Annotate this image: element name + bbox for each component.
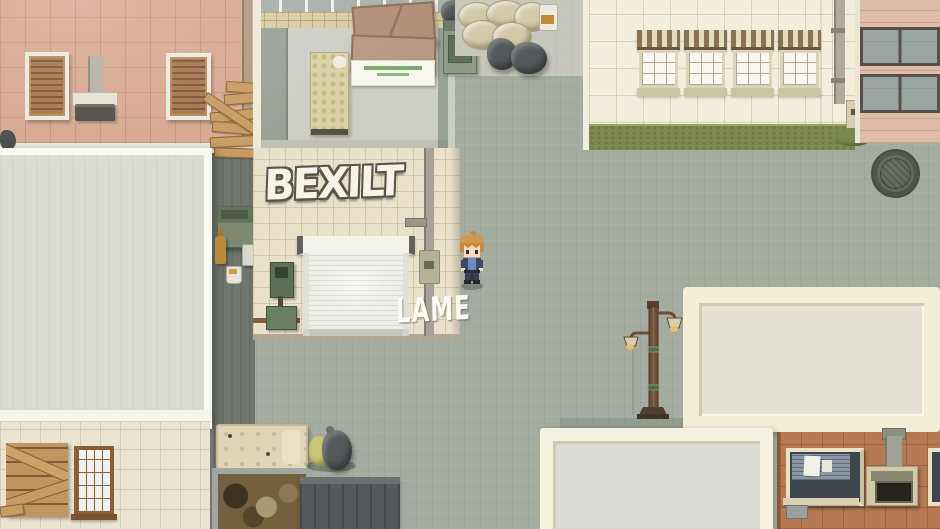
large-window-row1 — [860, 27, 940, 66]
room-floor-shadow — [261, 140, 448, 148]
taped-paper — [822, 460, 832, 472]
trash-bag-corner — [0, 130, 16, 150]
utility-box-lower — [266, 306, 297, 330]
awning — [637, 30, 680, 50]
room-wall-left — [260, 28, 288, 140]
scroll-blotch — [333, 56, 346, 68]
wall-vent-grille — [75, 104, 115, 121]
bag-knot — [326, 426, 334, 434]
mattress-fold — [282, 430, 300, 464]
lamp-arm-left — [624, 333, 649, 350]
graffiti-text: BEXILT — [263, 160, 405, 220]
awning — [731, 30, 774, 50]
collector-slot — [424, 261, 434, 269]
notice-sign — [351, 60, 435, 86]
garbage-crate — [212, 468, 312, 529]
awning — [778, 30, 821, 50]
scroll-base — [311, 129, 348, 135]
mattress-stain — [228, 434, 232, 438]
window-sill — [637, 88, 680, 96]
window-sill — [731, 88, 774, 96]
shuttered-window-right — [166, 53, 211, 120]
player-head — [460, 231, 484, 257]
window-blinds — [792, 454, 850, 480]
step-block — [786, 505, 808, 519]
cup-contents — [229, 269, 237, 274]
interior-room — [253, 0, 455, 148]
jar-contents — [541, 15, 554, 24]
wall-drain-pipe — [88, 56, 103, 96]
refuse-hopper — [866, 466, 918, 506]
lamp-post — [637, 301, 669, 419]
awning-window — [686, 50, 725, 88]
street-lamp — [607, 293, 687, 427]
shuttered-window-left — [25, 52, 69, 120]
rooftop-bottom — [540, 428, 773, 529]
room-edge-strip — [253, 0, 261, 148]
window-sill — [684, 88, 727, 96]
trash-bag-dark — [511, 42, 547, 74]
wall-scroll — [310, 52, 349, 136]
partial-window — [928, 448, 940, 506]
awning-window — [780, 50, 819, 88]
utility-box-screen — [275, 267, 288, 278]
pipe-strap — [831, 78, 845, 83]
roller-shutter-door — [303, 253, 409, 331]
pipe-collector — [419, 250, 440, 284]
utility-box-upper — [270, 262, 294, 298]
grid-window — [74, 446, 114, 516]
lamp-arm-right — [658, 313, 682, 332]
taped-paper — [803, 456, 820, 477]
cup — [226, 266, 242, 284]
graffiti-tag: LAME — [395, 294, 448, 340]
player-body — [461, 258, 483, 284]
sign-green-text-line — [377, 73, 410, 76]
hopper-top — [871, 471, 913, 481]
mattress-stain — [266, 452, 270, 456]
grid-window-sill — [71, 514, 117, 520]
pipe-strap — [831, 28, 845, 33]
player-character[interactable] — [455, 229, 489, 291]
large-window-row2 — [860, 74, 940, 113]
manhole-pattern — [880, 158, 911, 189]
awning — [684, 30, 727, 50]
sign-green-text-line — [364, 66, 421, 70]
awning-window — [733, 50, 772, 88]
bottle — [215, 236, 226, 264]
awning-window — [639, 50, 678, 88]
game-viewport: BEXILT LAME — [0, 0, 940, 529]
dark-dumpster — [300, 477, 400, 529]
window-ledge — [783, 498, 859, 505]
hopper-opening — [875, 481, 913, 503]
rooftop-right — [683, 287, 940, 432]
building-salmon-siding — [860, 0, 940, 143]
hedge-strip — [589, 124, 855, 150]
jar — [539, 4, 558, 31]
trash-bag-dark-mid — [322, 430, 352, 470]
chute-pipe — [885, 436, 902, 470]
pipe-bracket — [405, 218, 427, 227]
rooftop-left — [0, 148, 212, 429]
drain-pipe-right — [834, 0, 845, 104]
dumpster-lid-panel — [221, 210, 248, 219]
window-sill — [778, 88, 821, 96]
shutter-bottom-bar — [303, 329, 409, 336]
discarded-mattress — [216, 424, 308, 472]
manhole-cover — [871, 149, 920, 198]
